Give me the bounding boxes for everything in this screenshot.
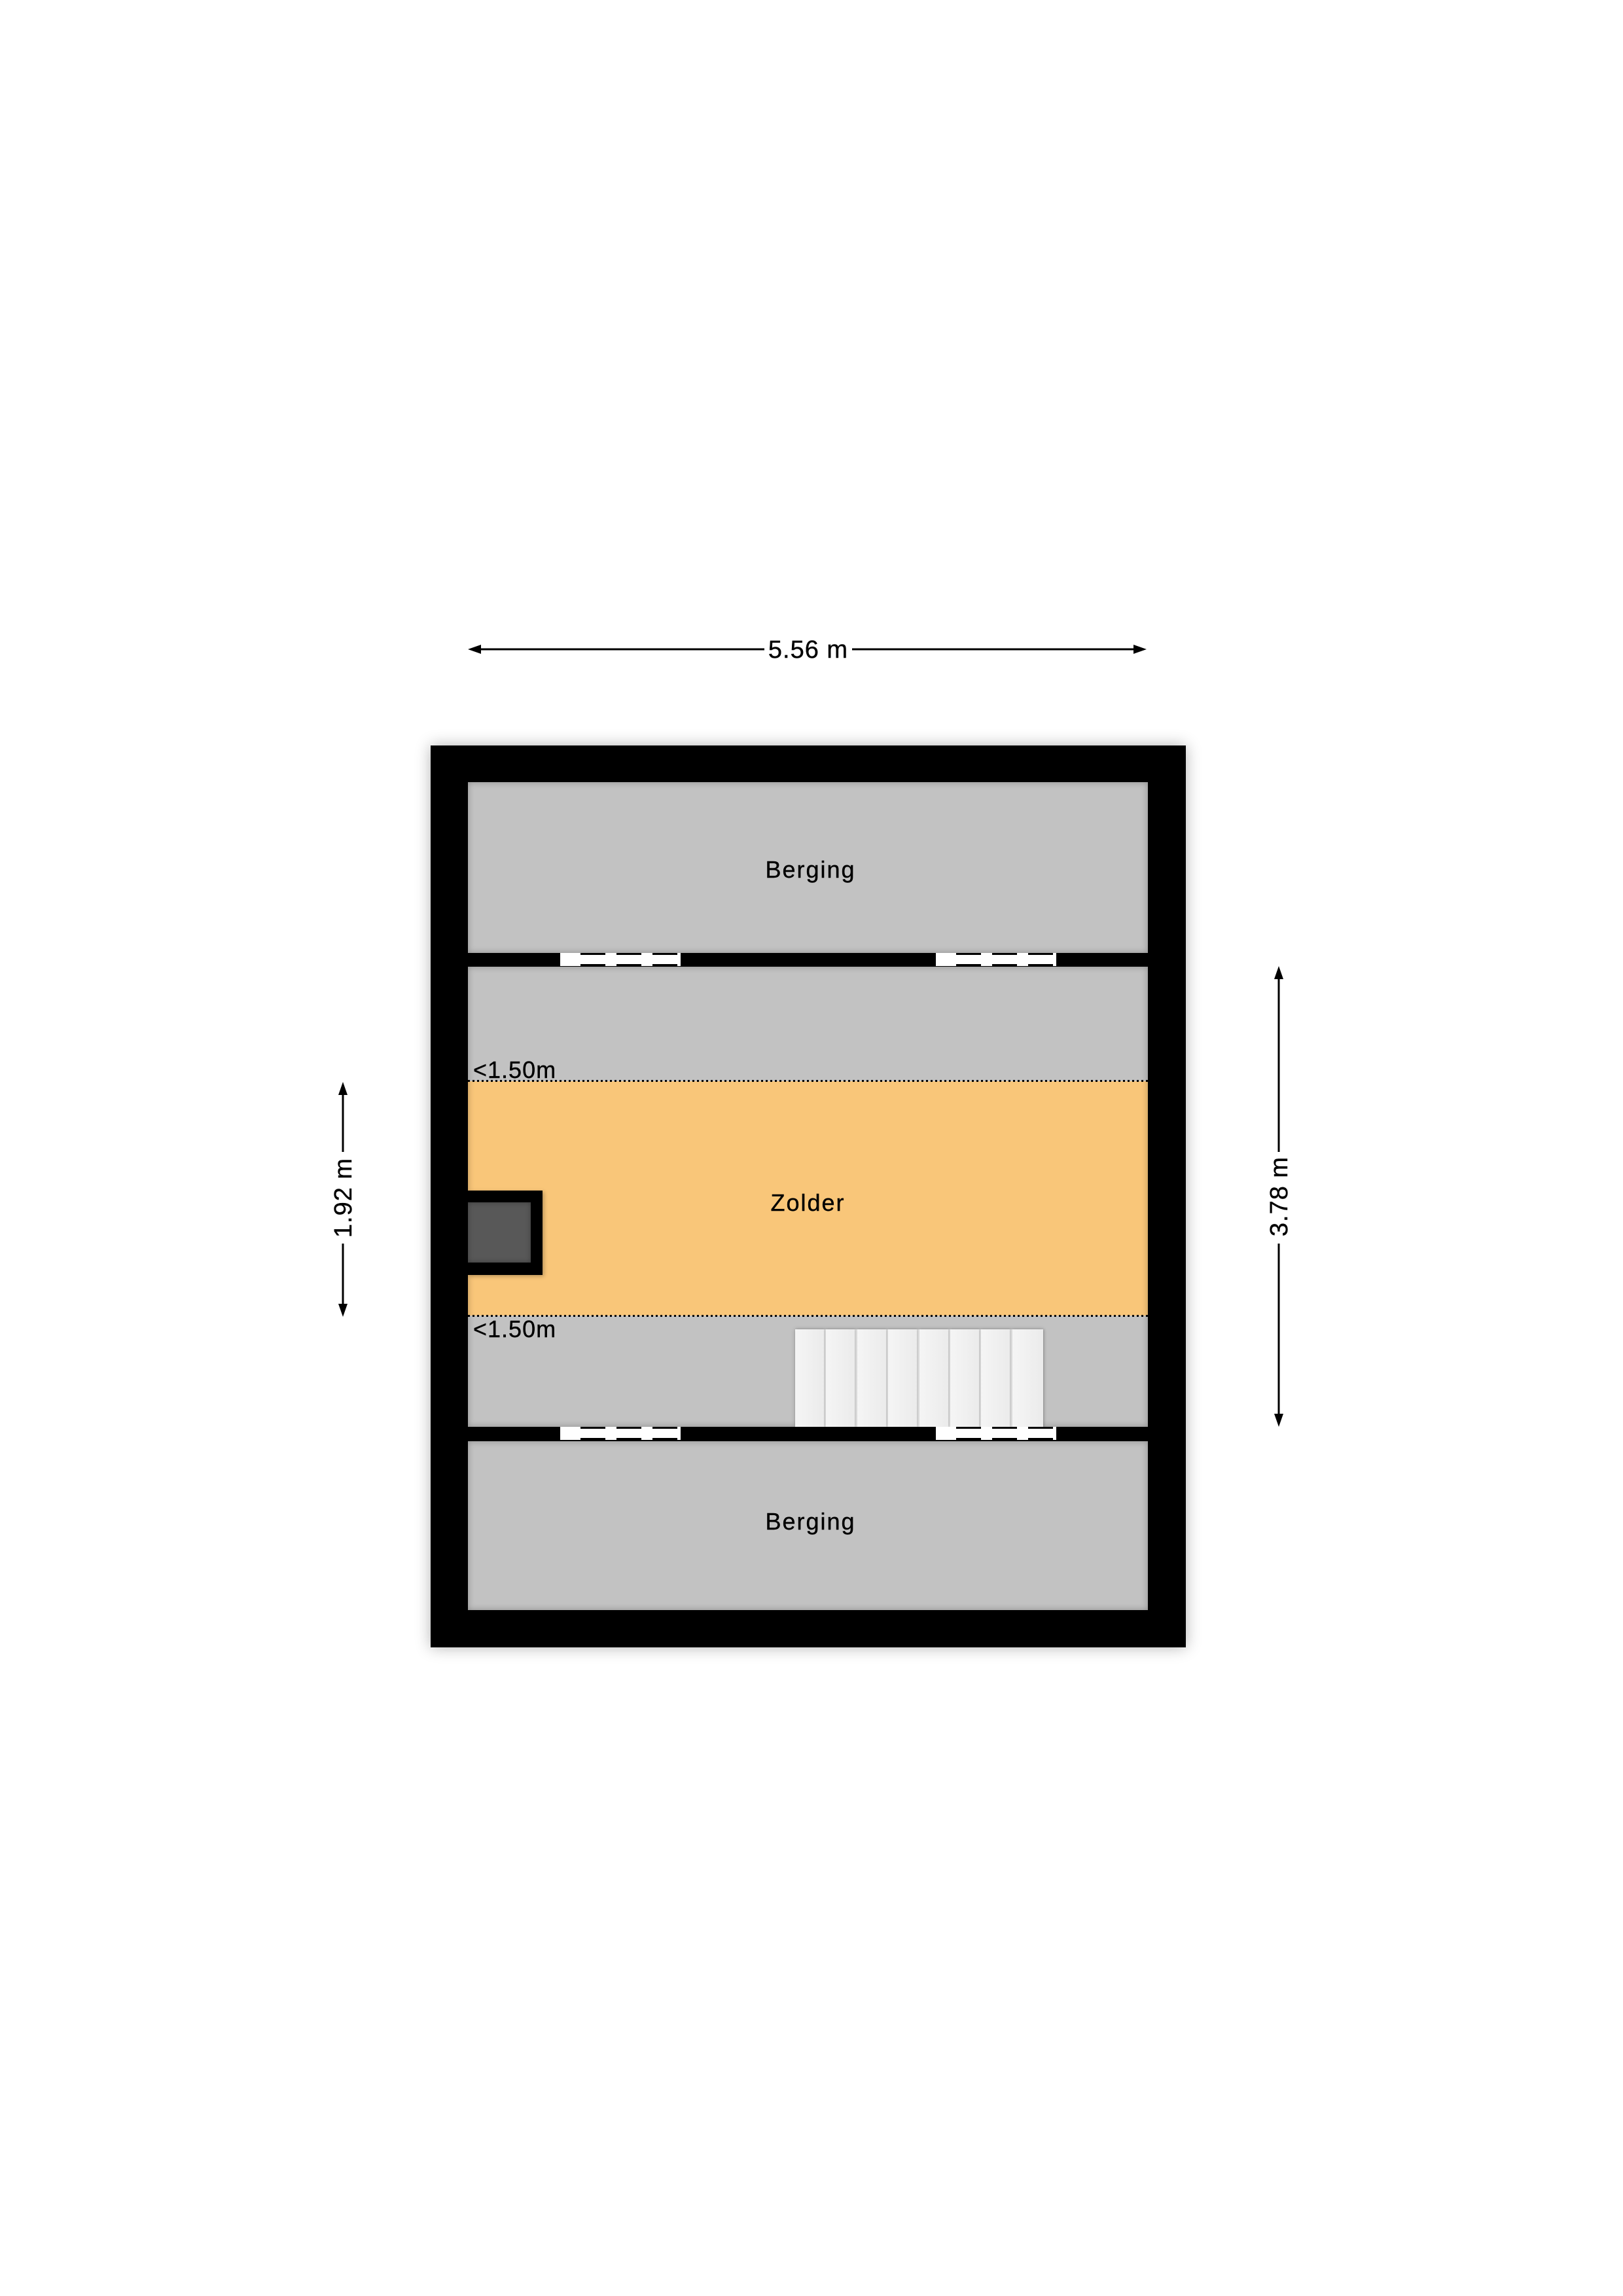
- svg-text:1.92 m: 1.92 m: [330, 1158, 357, 1238]
- svg-text:3.78 m: 3.78 m: [1266, 1157, 1293, 1236]
- svg-text:5.56 m: 5.56 m: [768, 636, 848, 664]
